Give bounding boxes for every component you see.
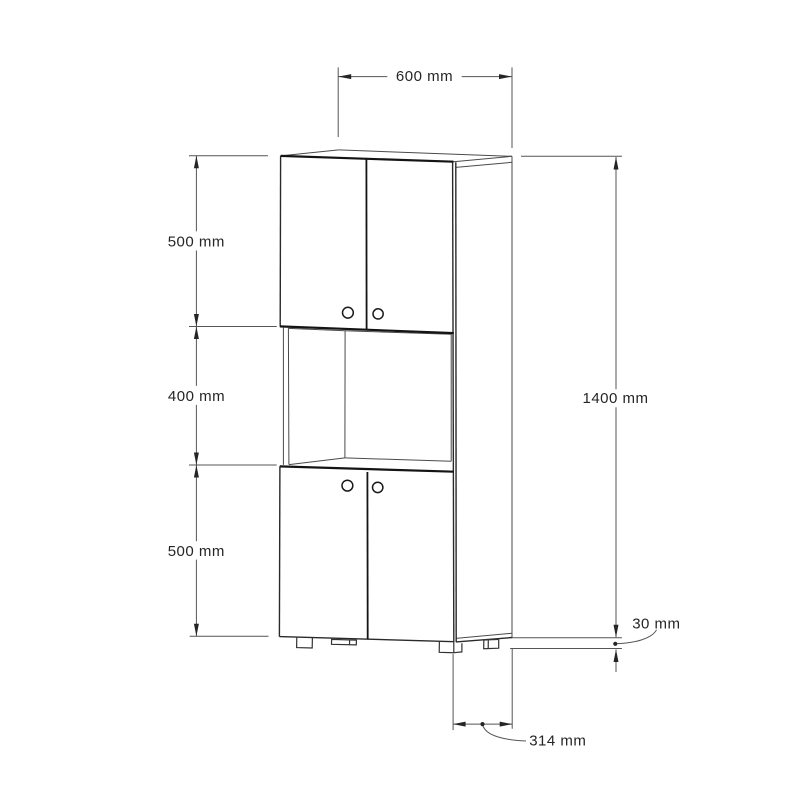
svg-text:500 mm: 500 mm [168,234,225,251]
svg-text:600 mm: 600 mm [396,68,453,85]
svg-text:314 mm: 314 mm [529,732,586,749]
svg-text:400 mm: 400 mm [168,388,225,405]
svg-text:1400 mm: 1400 mm [582,390,648,407]
svg-text:30 mm: 30 mm [632,615,680,632]
svg-text:500 mm: 500 mm [168,543,225,560]
